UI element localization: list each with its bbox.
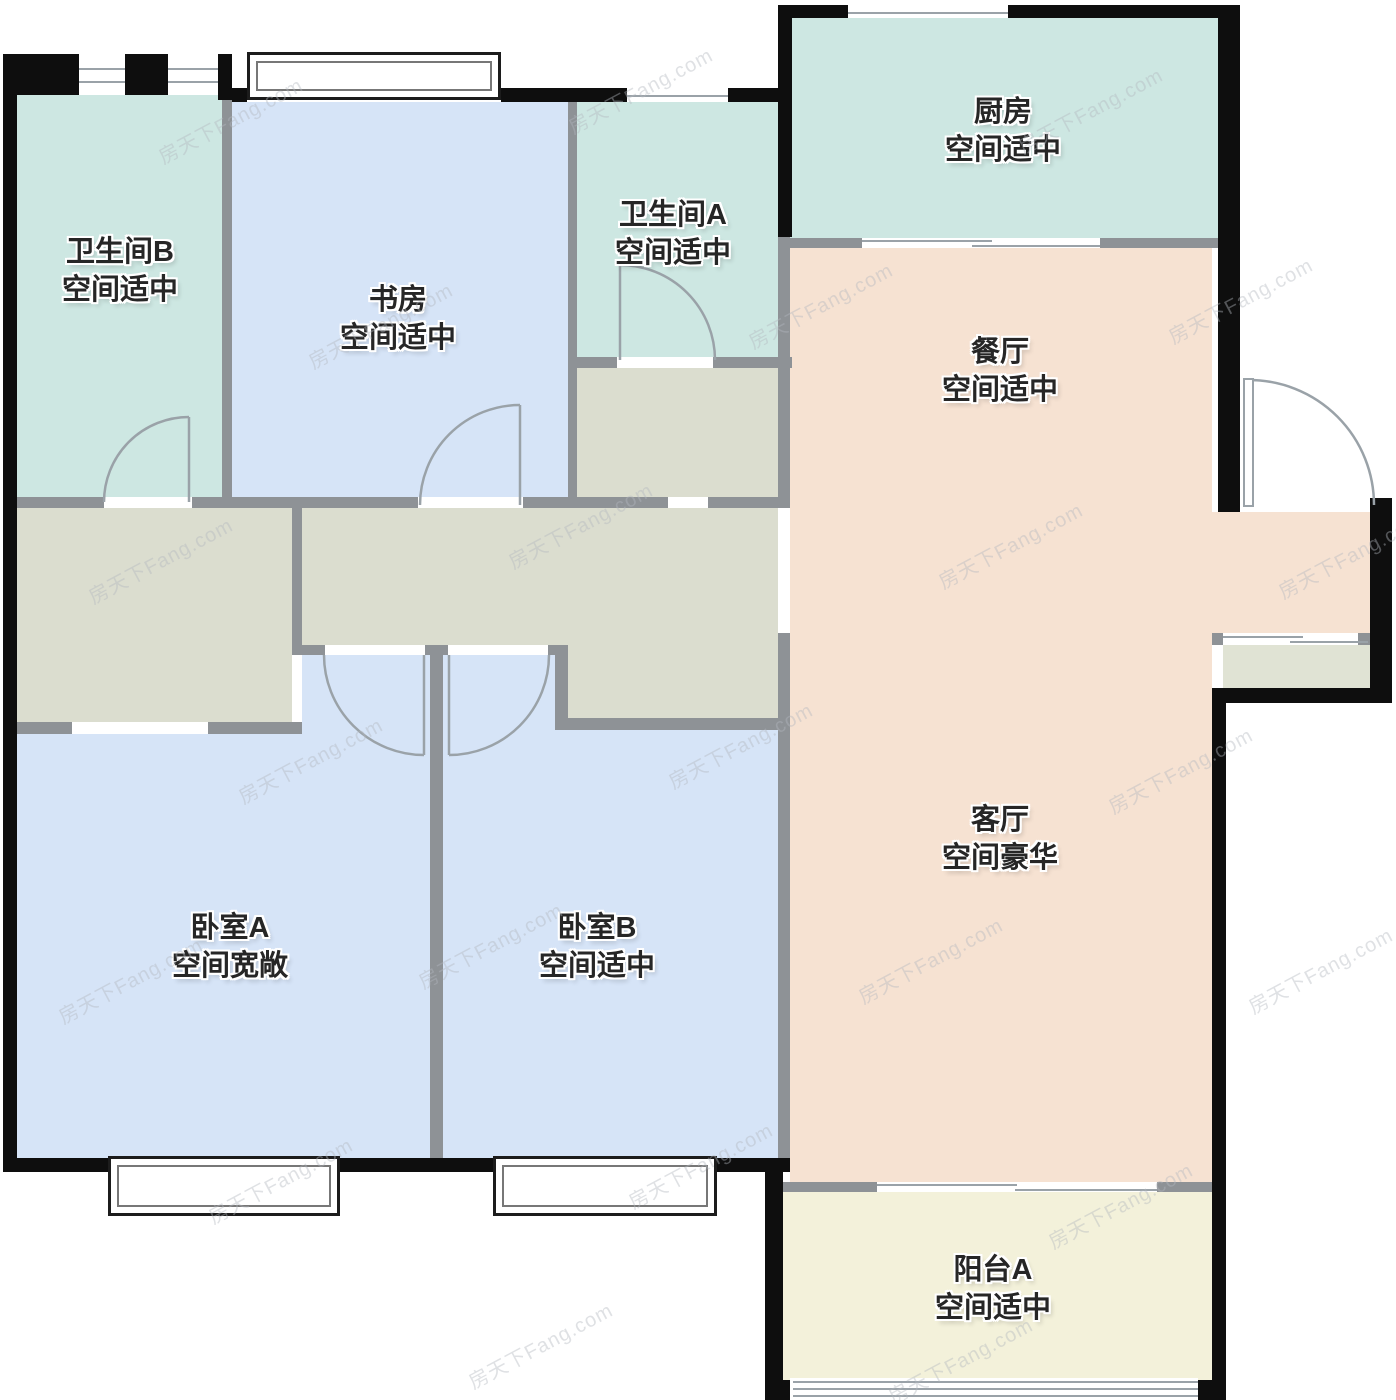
room-name: 卫生间B <box>62 233 178 271</box>
room-name: 阳台A <box>935 1251 1051 1289</box>
room-label-dining: 餐厅空间适中 <box>942 333 1058 409</box>
room-name: 客厅 <box>942 801 1058 839</box>
door-arc <box>324 655 424 755</box>
room-label-bedroom-a: 卧室A空间宽敞 <box>172 909 288 985</box>
room-size-note: 空间适中 <box>942 371 1058 409</box>
door-arc <box>420 405 520 505</box>
room-name: 餐厅 <box>942 333 1058 371</box>
room-label-kitchen: 厨房空间适中 <box>945 93 1061 169</box>
room-name: 卧室B <box>539 909 655 947</box>
room-name: 书房 <box>340 281 456 319</box>
room-label-bedroom-b: 卧室B空间适中 <box>539 909 655 985</box>
entry-door-leaf <box>1243 378 1254 507</box>
room-name: 卧室A <box>172 909 288 947</box>
door-arc <box>1249 380 1374 505</box>
room-name: 厨房 <box>945 93 1061 131</box>
room-size-note: 空间宽敞 <box>172 947 288 985</box>
room-label-bathroom-b: 卫生间B空间适中 <box>62 233 178 309</box>
room-label-living: 客厅空间豪华 <box>942 801 1058 877</box>
door-arc <box>449 655 549 755</box>
door-arc <box>104 417 189 502</box>
room-size-note: 空间适中 <box>62 271 178 309</box>
room-size-note: 空间适中 <box>935 1289 1051 1327</box>
room-size-note: 空间适中 <box>945 131 1061 169</box>
room-size-note: 空间适中 <box>539 947 655 985</box>
room-label-bathroom-a: 卫生间A空间适中 <box>615 196 731 272</box>
floorplan: 卫生间B空间适中书房空间适中卫生间A空间适中厨房空间适中餐厅空间适中客厅空间豪华… <box>0 0 1396 1400</box>
room-size-note: 空间豪华 <box>942 839 1058 877</box>
room-name: 卫生间A <box>615 196 731 234</box>
door-arc <box>620 265 715 360</box>
room-size-note: 空间适中 <box>340 319 456 357</box>
room-size-note: 空间适中 <box>615 234 731 272</box>
room-label-balcony-a: 阳台A空间适中 <box>935 1251 1051 1327</box>
room-label-study: 书房空间适中 <box>340 281 456 357</box>
